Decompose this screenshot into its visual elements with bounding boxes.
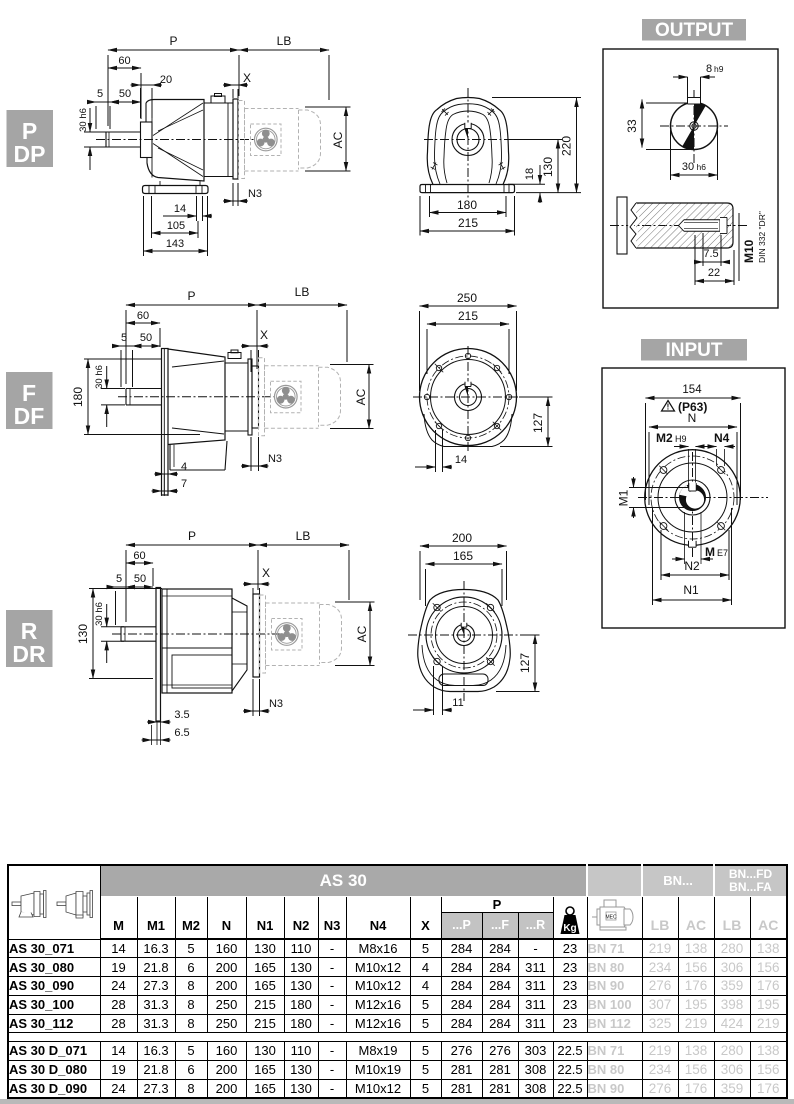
svg-text:P: P [169,34,177,48]
svg-text:DIN 332 "DR": DIN 332 "DR" [757,211,767,263]
svg-text:250: 250 [457,291,477,305]
svg-text:20: 20 [160,74,172,86]
svg-text:127: 127 [531,413,545,433]
svg-text:60: 60 [137,310,149,322]
svg-text:7: 7 [181,478,187,490]
svg-text:130: 130 [76,624,90,644]
svg-text:5: 5 [116,573,122,585]
svg-text:6.5: 6.5 [174,727,189,739]
svg-text:14: 14 [174,203,186,215]
svg-text:8: 8 [706,63,712,75]
svg-text:LB: LB [277,34,292,48]
svg-text:P: P [188,529,196,543]
svg-text:Kg: Kg [563,923,576,934]
svg-text:30 h6: 30 h6 [78,108,89,132]
svg-text:180: 180 [71,387,85,407]
svg-text:200: 200 [452,531,472,545]
svg-text:P: P [187,289,195,303]
svg-text:50: 50 [134,573,146,585]
svg-text:180: 180 [457,198,477,212]
svg-text:DP: DP [14,141,46,167]
svg-text:DF: DF [14,403,45,429]
svg-text:11: 11 [452,697,463,709]
svg-text:154: 154 [682,384,702,396]
svg-text:h9: h9 [714,64,724,74]
svg-text:22: 22 [708,267,720,279]
svg-text:X: X [243,71,251,85]
svg-text:M1: M1 [617,489,631,506]
svg-text:130: 130 [541,157,555,177]
svg-text:3.5: 3.5 [174,709,189,721]
svg-text:143: 143 [166,238,184,250]
svg-text:215: 215 [458,216,478,230]
svg-text:165: 165 [453,549,473,563]
svg-text:30 h6: 30 h6 [94,365,105,389]
svg-text:N3: N3 [269,698,283,710]
svg-text:4: 4 [181,461,187,473]
svg-text:N1: N1 [683,583,699,597]
svg-text:14: 14 [455,454,467,466]
svg-text:30 h6: 30 h6 [94,602,105,626]
svg-text:H9: H9 [675,434,687,444]
svg-text:33: 33 [625,119,639,133]
svg-text:!: ! [667,403,670,412]
svg-text:7.5: 7.5 [703,248,718,260]
svg-text:h6: h6 [697,162,707,172]
svg-text:MEC: MEC [605,915,617,921]
svg-text:60: 60 [118,55,130,67]
svg-text:X: X [262,566,270,580]
svg-text:127: 127 [518,653,532,673]
svg-text:60: 60 [133,550,145,562]
svg-text:30: 30 [682,161,694,173]
svg-text:INPUT: INPUT [666,340,723,361]
svg-text:5: 5 [121,332,127,344]
svg-text:220: 220 [560,136,574,156]
svg-text:E7: E7 [717,548,728,558]
svg-text:M: M [705,545,715,559]
svg-text:N2: N2 [684,559,700,573]
svg-text:LB: LB [296,529,311,543]
svg-text:M10: M10 [742,239,756,263]
svg-text:50: 50 [140,332,152,344]
svg-text:N3: N3 [268,453,282,465]
svg-text:OUTPUT: OUTPUT [655,20,734,41]
svg-text:215: 215 [458,309,478,323]
svg-text:DR: DR [12,641,46,667]
svg-text:AC: AC [355,625,369,642]
svg-text:AC: AC [331,131,345,148]
svg-text:N3: N3 [248,188,262,200]
svg-text:18: 18 [524,168,536,180]
svg-text:N: N [688,411,697,425]
svg-text:50: 50 [119,88,131,100]
svg-text:AC: AC [354,388,368,405]
svg-text:5: 5 [97,88,103,100]
svg-text:N4: N4 [714,431,730,445]
svg-text:105: 105 [167,220,185,232]
svg-text:M2: M2 [656,431,673,445]
svg-text:LB: LB [295,285,310,299]
svg-text:X: X [260,328,268,342]
